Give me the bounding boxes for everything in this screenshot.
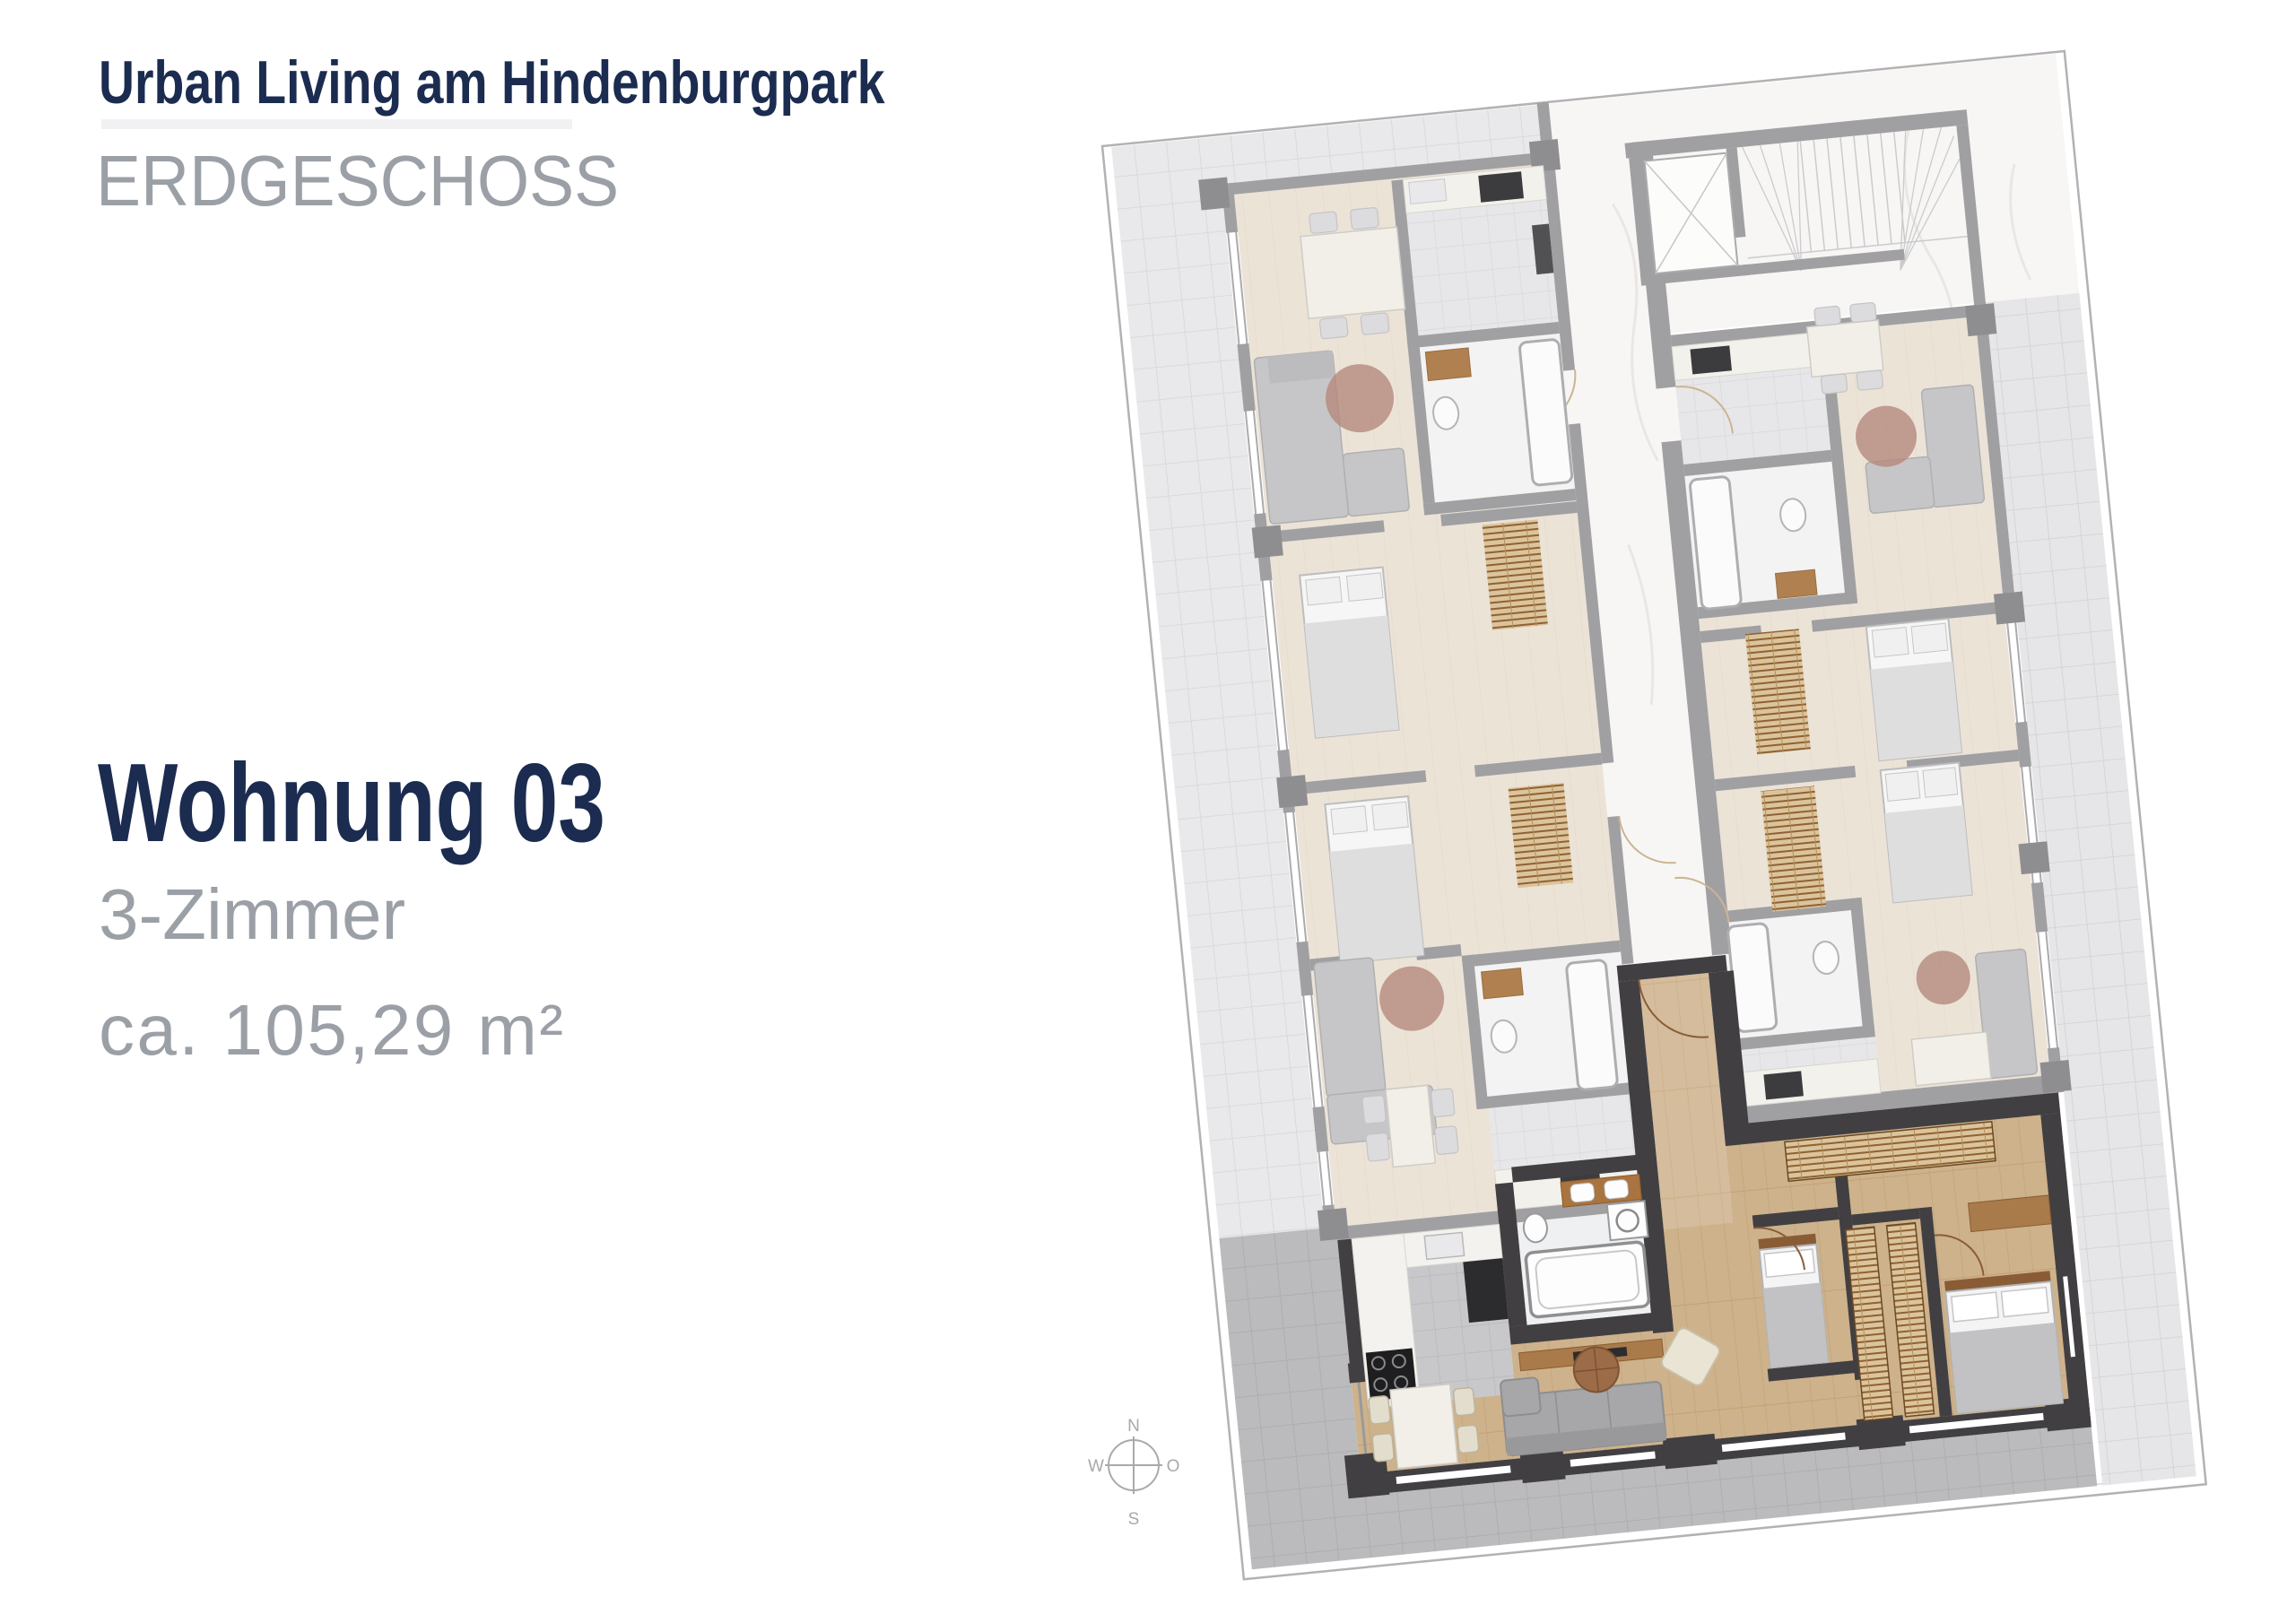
svg-text:W: W xyxy=(1088,1457,1104,1476)
svg-text:N: N xyxy=(1127,1417,1140,1436)
svg-text:O: O xyxy=(1167,1457,1180,1476)
svg-text:S: S xyxy=(1128,1510,1140,1529)
